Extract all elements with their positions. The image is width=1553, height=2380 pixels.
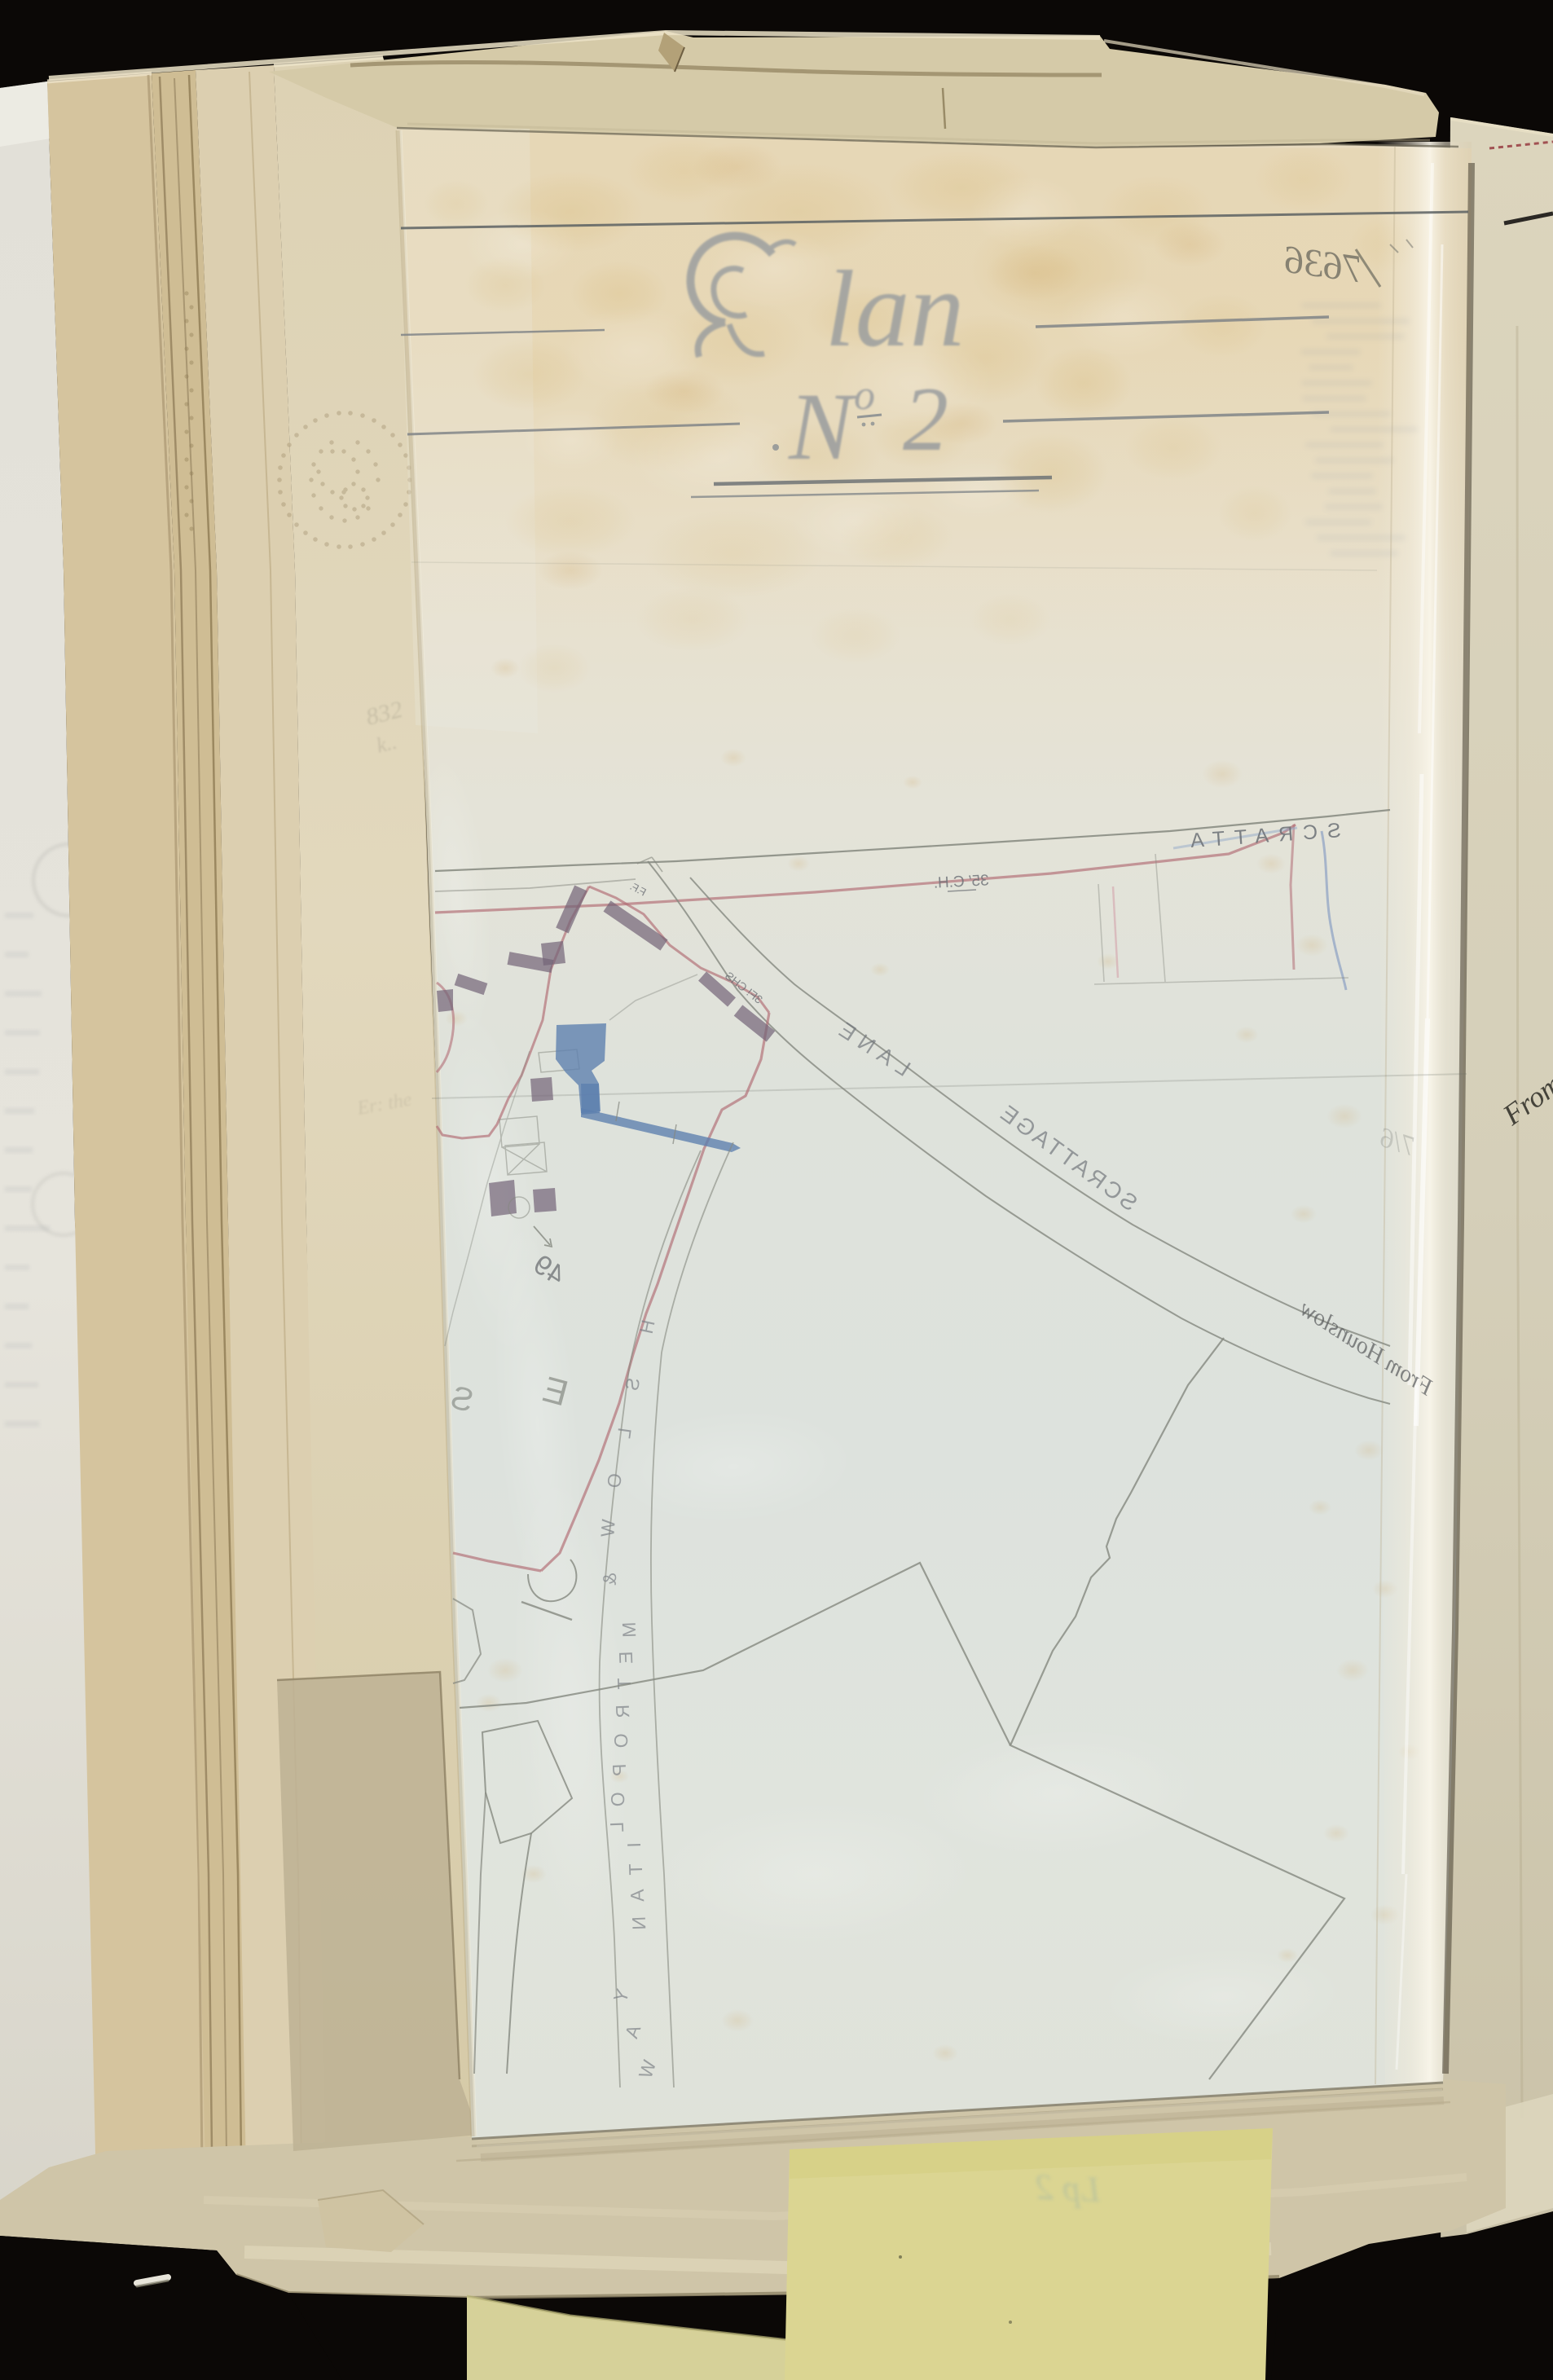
svg-text:W: W <box>596 1519 618 1538</box>
svg-text:N: N <box>628 1916 650 1931</box>
svg-text:I: I <box>623 1842 645 1848</box>
svg-text:L: L <box>606 1821 627 1832</box>
svg-text:O: O <box>603 1472 626 1489</box>
svg-text:T: T <box>625 1863 646 1876</box>
svg-text:M: M <box>618 1621 640 1638</box>
svg-text:35′ C.H.: 35′ C.H. <box>933 872 989 892</box>
svg-text:o: o <box>854 372 875 419</box>
svg-text:P: P <box>609 1763 631 1776</box>
svg-text:O: O <box>610 1733 632 1749</box>
svg-text:R: R <box>612 1705 634 1719</box>
svg-text:lan: lan <box>825 249 964 369</box>
svg-text:N: N <box>788 373 858 480</box>
svg-text:Lp 2: Lp 2 <box>1035 2167 1102 2210</box>
svg-text:E: E <box>615 1651 637 1664</box>
svg-text:&: & <box>599 1573 621 1586</box>
svg-text:2: 2 <box>903 369 948 470</box>
svg-text:A: A <box>627 1889 649 1903</box>
svg-text:O: O <box>607 1792 629 1807</box>
